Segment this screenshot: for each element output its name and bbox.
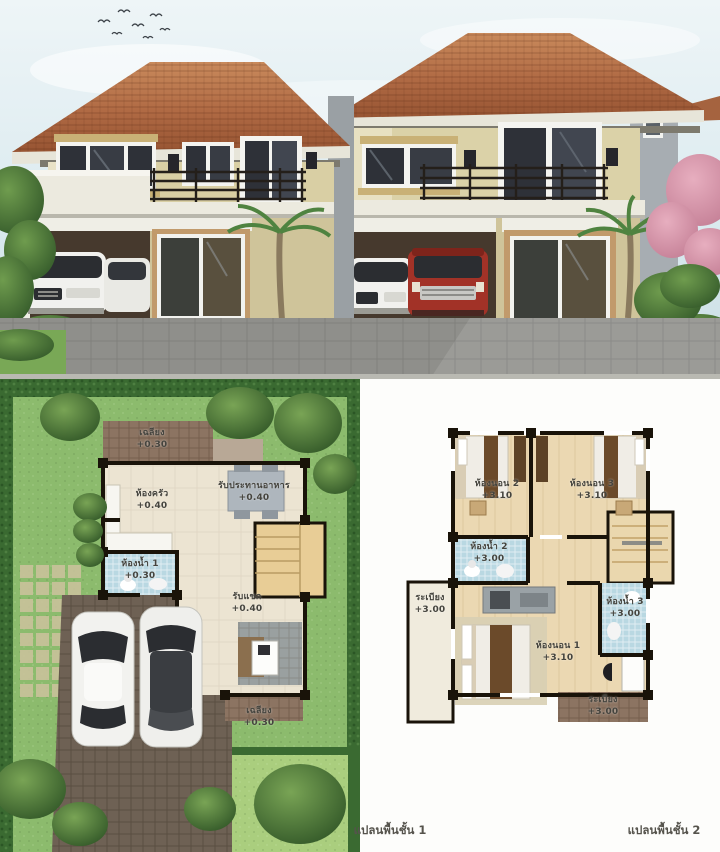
floor-plan-1 — [0, 379, 360, 852]
bed — [456, 436, 508, 498]
bed — [462, 625, 530, 699]
architecture-sheet: เฉลียง +0.30 ห้องครัว +0.40 รับประทานอาห… — [0, 0, 720, 852]
white-hatchback — [350, 258, 412, 314]
floor-plan-2 — [360, 379, 720, 852]
car-top-view — [72, 612, 134, 746]
floor-plans-drawing — [0, 379, 720, 852]
plan-1-caption: แปลนพื้นชั้น 1 — [354, 822, 427, 840]
exterior-render — [0, 0, 720, 379]
bed — [594, 436, 646, 498]
red-suv — [408, 248, 488, 316]
car-top-view — [140, 607, 202, 747]
plan-2-caption: แปลนพื้นชั้น 2 — [628, 822, 701, 840]
